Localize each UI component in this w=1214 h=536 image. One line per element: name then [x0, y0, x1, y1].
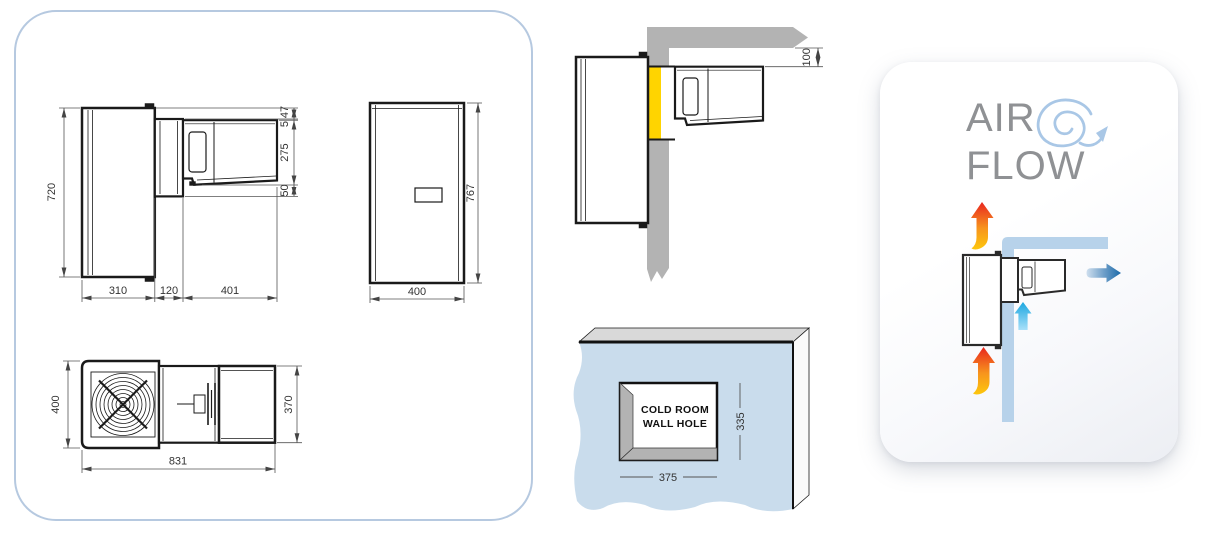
installation-spec-sheet: { "drawings_panel": { "side_view": { "he…	[0, 0, 1214, 536]
dim-ceiling-clearance: 100	[801, 48, 813, 66]
cold-room-wall-section	[647, 27, 808, 282]
warm-air-arrow-bottom	[973, 347, 996, 395]
dim-depth-right: 370	[283, 395, 295, 413]
front-view-unit-outline	[370, 103, 464, 283]
wall-hole-drawing: COLD ROOM WALL HOLE 375 335	[565, 305, 865, 533]
dim-height: 767	[465, 184, 477, 202]
dim-width-right: 401	[221, 285, 239, 297]
wall-hole: COLD ROOM WALL HOLE	[620, 383, 717, 460]
control-display	[683, 78, 698, 115]
air-flow-diagram	[950, 192, 1140, 437]
exhaust-air-arrow	[1087, 264, 1122, 283]
hole-label-line1: COLD ROOM	[641, 404, 709, 416]
dim-hole-width: 375	[659, 472, 677, 484]
through-wall-section	[1001, 258, 1018, 302]
evaporator-section	[963, 255, 1001, 345]
mounting-nub-top	[145, 104, 154, 109]
air-flow-panel: AIR FLOW	[880, 62, 1178, 462]
dim-length: 831	[169, 456, 187, 468]
mounting-nub-bottom	[639, 223, 647, 228]
drain-notch	[190, 182, 196, 186]
dim-depth-left: 400	[50, 395, 62, 413]
dim-top-offset: 47	[279, 106, 291, 118]
condenser-block	[219, 366, 275, 443]
side-view-unit-outline	[82, 104, 277, 282]
top-view-drawing: 400 370 831	[42, 347, 342, 482]
front-view-drawing: 400 767	[362, 97, 497, 312]
through-wall-section	[155, 119, 183, 196]
wall-installation-drawing: 100	[565, 20, 865, 290]
control-display	[415, 188, 442, 202]
dim-width-left: 310	[109, 285, 127, 297]
wall-top-face	[579, 328, 809, 342]
control-display	[1022, 267, 1032, 288]
control-display	[189, 132, 206, 172]
cold-air-arrow	[1015, 302, 1032, 330]
through-wall-duct	[648, 66, 675, 140]
hole-bevel-left	[620, 383, 633, 460]
clearance-dimension	[765, 48, 823, 67]
dim-width: 400	[408, 286, 426, 298]
side-view-drawing: 720 310 120 401 47 5 275 50	[42, 88, 342, 318]
hole-bevel-bottom	[620, 448, 717, 460]
warm-air-arrow-top	[971, 202, 994, 250]
hole-label-line2: WALL HOLE	[643, 418, 707, 430]
dim-bottom-offset: 50	[279, 184, 291, 196]
wall-gasket	[649, 68, 661, 139]
wall-side-face	[793, 328, 809, 509]
dim-gap: 5	[279, 121, 291, 127]
air-swirl-icon	[1030, 92, 1120, 156]
mounting-nub-bottom	[145, 277, 154, 282]
dim-hole-height: 335	[735, 412, 747, 430]
evaporator-section	[576, 57, 648, 223]
mounting-nub-top	[639, 52, 647, 57]
dim-height: 720	[46, 183, 58, 201]
dim-condenser-height: 275	[279, 143, 291, 161]
dim-width-middle: 120	[160, 285, 178, 297]
dimensions-panel: 720 310 120 401 47 5 275 50	[14, 10, 533, 521]
